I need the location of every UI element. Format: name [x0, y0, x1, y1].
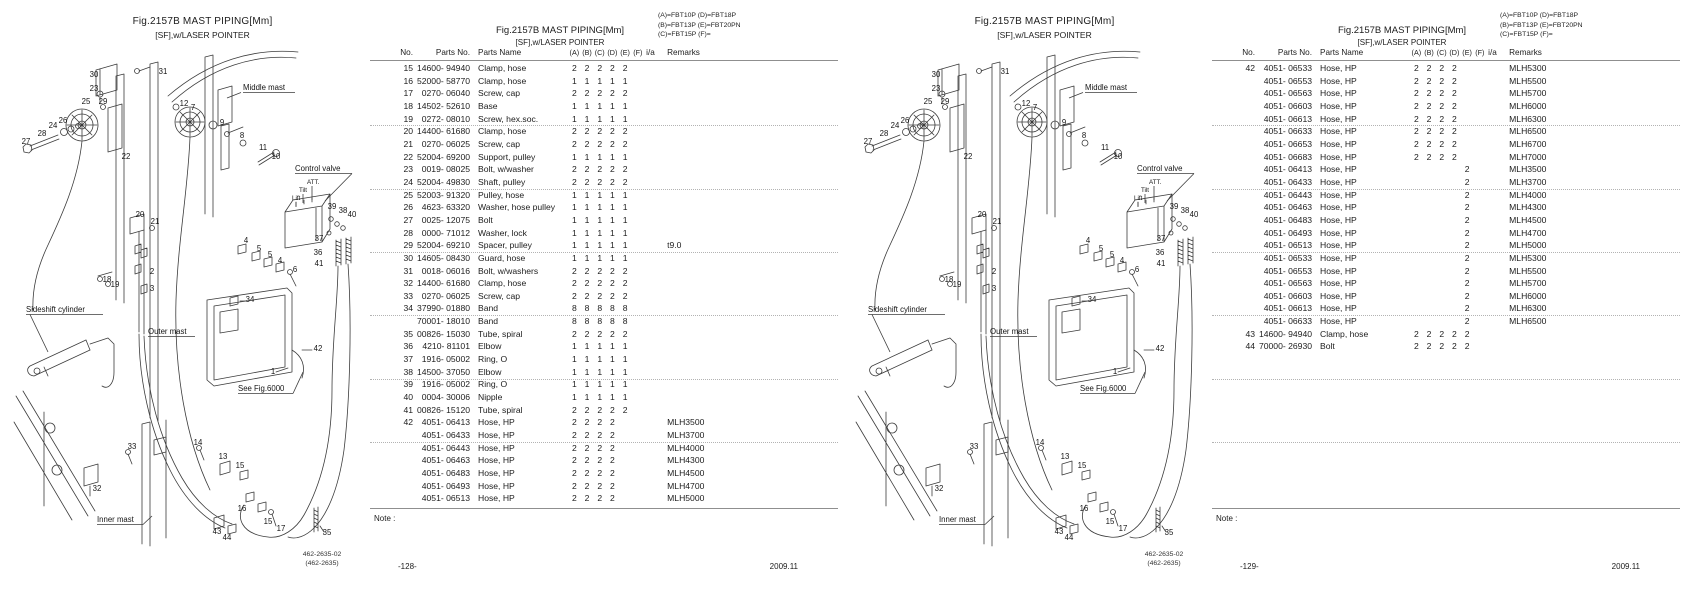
cell-qty-e: 1: [619, 201, 632, 214]
cell-qty-c: 2: [593, 125, 606, 138]
cell-qty-b: 1: [581, 113, 594, 126]
cell-qty-a: [1410, 214, 1423, 227]
callout-number: 3: [992, 284, 996, 293]
cell-parts-name: Hose, HP: [470, 467, 568, 480]
cell-qty-b: 1: [581, 75, 594, 88]
cell-parts-name: Hose, HP: [1312, 163, 1410, 176]
cell-parts-name: Hose, HP: [470, 492, 568, 505]
callout-number: 5: [1110, 250, 1115, 259]
cell-qty-c: [1435, 302, 1448, 315]
cell-qty-f: [631, 480, 644, 493]
cell-remarks: [664, 176, 838, 189]
header-ia: i/a: [1486, 45, 1506, 60]
cell-qty-b: [1423, 163, 1436, 176]
callout-number: 24: [49, 121, 58, 130]
cell-qty-f: [631, 404, 644, 417]
table-row: 4100826- 15120Tube, spiral22222: [370, 404, 838, 417]
cell-parts-no: 4051- 06633: [1255, 315, 1312, 328]
cell-qty-a: [1410, 315, 1423, 328]
callout-number: 38: [339, 206, 348, 215]
cell-qty-f: [1473, 315, 1486, 328]
callout-number: 25: [82, 97, 91, 106]
cell-ia: [644, 492, 664, 505]
cell-qty-f: [1473, 252, 1486, 265]
cell-ia: [1486, 328, 1506, 341]
cell-qty-a: 2: [1410, 328, 1423, 341]
cell-remarks: [664, 366, 838, 379]
cell-no: [1212, 163, 1255, 176]
cell-ia: [644, 328, 664, 341]
cell-qty-c: 2: [593, 138, 606, 151]
parts-table: 424051- 06533Hose, HP2222MLH53004051- 06…: [1212, 62, 1680, 509]
cell-ia: [1486, 87, 1506, 100]
cell-remarks: [664, 214, 838, 227]
table-row: 1652000- 58770Clamp, hose11111: [370, 75, 838, 88]
cell-parts-no: 0018- 06016: [413, 265, 470, 278]
cell-qty-b: [1423, 239, 1436, 252]
callout-number: 32: [93, 484, 102, 493]
callout-number: 13: [219, 452, 228, 461]
cell-qty-e: [619, 454, 632, 467]
cell-remarks: [664, 163, 838, 176]
cell-remarks: [664, 151, 838, 164]
cell-ia: [1486, 163, 1506, 176]
callout-number: 42: [1156, 344, 1165, 353]
cell-qty-f: [1473, 87, 1486, 100]
cell-parts-no: 4051- 06563: [1255, 87, 1312, 100]
cell-qty-e: 1: [619, 353, 632, 366]
cell-no: 43: [1212, 328, 1255, 341]
table-row: 4470000- 26930Bolt22222: [1212, 340, 1680, 353]
diagram-label: See Fig.6000: [1080, 384, 1127, 393]
drawing-code: 462-2635-02 (462-2635): [1122, 551, 1206, 568]
cell-parts-name: Ring, O: [470, 378, 568, 391]
cell-qty-e: 2: [619, 328, 632, 341]
cell-qty-a: 2: [568, 328, 581, 341]
cell-qty-d: 1: [606, 252, 619, 265]
cell-qty-c: [1435, 189, 1448, 202]
cell-parts-name: Bolt, w/washers: [470, 265, 568, 278]
cell-parts-name: Clamp, hose: [1312, 328, 1410, 341]
cell-qty-e: [1461, 125, 1474, 138]
cell-qty-a: 2: [568, 429, 581, 442]
diagram-label: Outer mast: [148, 327, 187, 336]
callout-number: 2: [992, 267, 996, 276]
catalog-page-128: 1234554678910111213141515161718192021222…: [0, 0, 842, 595]
diagram-label: Sideshift cylinder: [26, 305, 85, 314]
cell-ia: [644, 315, 664, 328]
cell-parts-name: Screw, cap: [470, 138, 568, 151]
cell-remarks: [664, 404, 838, 417]
header-qty-a: (A): [1410, 45, 1423, 60]
cell-no: [1212, 265, 1255, 278]
cell-remarks: [664, 227, 838, 240]
cell-qty-d: [1448, 239, 1461, 252]
cell-no: [1212, 176, 1255, 189]
cell-qty-f: [631, 87, 644, 100]
cell-remarks: [664, 328, 838, 341]
cell-ia: [1486, 252, 1506, 265]
callout-number: 17: [1119, 524, 1128, 533]
header-qty-b: (B): [1423, 45, 1436, 60]
callout-number: 19: [111, 280, 120, 289]
cell-no: [1212, 302, 1255, 315]
callout-number: 29: [99, 97, 108, 106]
diagram-artwork: [856, 51, 1193, 546]
table-row: 4051- 06533Hose, HP2MLH5300: [1212, 252, 1680, 265]
cell-qty-c: 1: [593, 252, 606, 265]
cell-parts-no: 14400- 61680: [413, 125, 470, 138]
cell-qty-c: 2: [1435, 151, 1448, 164]
cell-qty-f: [631, 252, 644, 265]
cell-qty-f: [1473, 151, 1486, 164]
diagram-label: Middle mast: [1085, 83, 1128, 92]
cell-qty-a: 2: [1410, 138, 1423, 151]
cell-parts-name: Shaft, pulley: [470, 176, 568, 189]
cell-qty-a: 2: [568, 277, 581, 290]
table-row: 2252004- 69200Support, pulley11111: [370, 151, 838, 164]
callout-number: 6: [1135, 265, 1139, 274]
callout-number: 27: [22, 137, 31, 146]
cell-remarks: [1506, 328, 1680, 341]
cell-qty-e: 2: [1461, 265, 1474, 278]
callout-number: 20: [978, 210, 987, 219]
callout-number: 13: [1061, 452, 1070, 461]
cell-qty-c: 1: [593, 113, 606, 126]
variant-key-line: (C)=FBT15P (F)=: [658, 30, 741, 40]
cell-qty-d: 2: [1448, 100, 1461, 113]
cell-qty-a: 2: [568, 480, 581, 493]
note-label: Note :: [1216, 514, 1237, 523]
cell-no: 35: [370, 328, 413, 341]
cell-parts-name: Guard, hose: [470, 252, 568, 265]
cell-qty-e: 2: [1461, 302, 1474, 315]
cell-parts-no: 4051- 06633: [1255, 125, 1312, 138]
group-separator: [1212, 315, 1680, 316]
cell-qty-e: 2: [619, 277, 632, 290]
cell-ia: [644, 252, 664, 265]
cell-no: [1212, 315, 1255, 328]
cell-qty-d: 2: [606, 467, 619, 480]
cell-ia: [644, 214, 664, 227]
group-separator: [370, 252, 838, 253]
cell-qty-f: [1473, 290, 1486, 303]
cell-no: 28: [370, 227, 413, 240]
cell-qty-f: [631, 454, 644, 467]
callout-number: 42: [314, 344, 323, 353]
cell-qty-a: 2: [568, 442, 581, 455]
cell-ia: [644, 429, 664, 442]
table-row: 371916- 05002Ring, O11111: [370, 353, 838, 366]
label-leader-line: [872, 315, 890, 353]
cell-parts-name: Hose, HP: [1312, 201, 1410, 214]
callout-number: 40: [1190, 210, 1199, 219]
cell-parts-no: 4051- 06433: [413, 429, 470, 442]
cell-remarks: MLH6000: [1506, 100, 1680, 113]
cell-parts-name: Hose, HP: [470, 442, 568, 455]
cell-qty-d: 1: [606, 366, 619, 379]
callout-number: 30: [90, 70, 99, 79]
cell-qty-e: 2: [1461, 328, 1474, 341]
diagram-subtitle: [SF],w/LASER POINTER: [60, 30, 345, 40]
callout-number: 11: [259, 143, 267, 152]
callout-number: 22: [964, 152, 973, 161]
cell-qty-a: [1410, 302, 1423, 315]
cell-qty-d: 1: [606, 227, 619, 240]
header-qty-c: (C): [593, 45, 606, 60]
cell-qty-b: 2: [581, 454, 594, 467]
cell-no: 21: [370, 138, 413, 151]
table-row: 4051- 06483Hose, HP2MLH4500: [1212, 214, 1680, 227]
callout-number: 7: [191, 103, 195, 112]
cell-parts-name: Hose, HP: [1312, 315, 1410, 328]
cell-parts-name: Hose, HP: [1312, 290, 1410, 303]
cell-no: [370, 492, 413, 505]
cell-ia: [644, 366, 664, 379]
cell-qty-f: [631, 75, 644, 88]
cell-remarks: [664, 87, 838, 100]
cell-remarks: [1506, 340, 1680, 353]
cell-qty-b: 2: [1423, 138, 1436, 151]
cell-qty-d: 2: [1448, 87, 1461, 100]
cell-qty-c: 1: [593, 201, 606, 214]
cell-remarks: MLH6500: [1506, 125, 1680, 138]
cell-qty-d: [1448, 252, 1461, 265]
model-variant-key: (A)=FBT10P (D)=FBT18P (B)=FBT13P (E)=FBT…: [1500, 11, 1583, 40]
table-title: Fig.2157B MAST PIPING[Mm]: [430, 25, 690, 36]
table-row: 4051- 06463Hose, HP2222MLH4300: [370, 454, 838, 467]
cell-ia: [644, 340, 664, 353]
cell-qty-b: 1: [581, 391, 594, 404]
cell-qty-e: 1: [619, 252, 632, 265]
cell-qty-c: 2: [593, 480, 606, 493]
cell-qty-e: [1461, 100, 1474, 113]
header-qty-d: (D): [606, 45, 619, 60]
cell-qty-c: 2: [593, 62, 606, 75]
cell-no: 42: [370, 416, 413, 429]
diagram-label: See Fig.6000: [238, 384, 285, 393]
cell-ia: [1486, 151, 1506, 164]
cell-qty-b: 1: [581, 151, 594, 164]
cell-parts-name: Hose, HP: [470, 416, 568, 429]
cell-ia: [1486, 265, 1506, 278]
cell-qty-c: 1: [593, 100, 606, 113]
cell-qty-a: 2: [568, 62, 581, 75]
page-number: -128-: [398, 562, 417, 571]
cell-qty-e: 1: [619, 113, 632, 126]
cell-qty-d: 2: [606, 265, 619, 278]
cell-no: 38: [370, 366, 413, 379]
table-row: 4051- 06413Hose, HP2MLH3500: [1212, 163, 1680, 176]
variant-key-line: (A)=FBT10P (D)=FBT18P: [658, 11, 741, 21]
cell-remarks: MLH3500: [1506, 163, 1680, 176]
cell-qty-c: 2: [593, 442, 606, 455]
header-qty-c: (C): [1435, 45, 1448, 60]
cell-parts-name: Hose, HP: [1312, 277, 1410, 290]
callout-number: 19: [953, 280, 962, 289]
cell-qty-f: [631, 315, 644, 328]
cell-qty-c: 1: [593, 227, 606, 240]
cell-qty-c: [1435, 163, 1448, 176]
cell-qty-b: 2: [1423, 340, 1436, 353]
cell-qty-b: 2: [581, 467, 594, 480]
cell-qty-f: [631, 113, 644, 126]
cell-no: [1212, 100, 1255, 113]
cell-qty-b: 2: [1423, 125, 1436, 138]
cell-parts-no: 4051- 06553: [1255, 265, 1312, 278]
label-leader-line: [325, 174, 352, 202]
diagram-label: Sideshift cylinder: [868, 305, 927, 314]
cell-parts-name: Elbow: [470, 340, 568, 353]
cell-qty-f: [631, 492, 644, 505]
callout-number: 23: [90, 84, 99, 93]
cell-remarks: [664, 125, 838, 138]
cell-qty-e: 2: [619, 87, 632, 100]
cell-qty-b: [1423, 290, 1436, 303]
cell-parts-no: 00826- 15120: [413, 404, 470, 417]
cell-parts-no: 4051- 06513: [1255, 239, 1312, 252]
cell-qty-c: [1435, 176, 1448, 189]
cell-qty-f: [1473, 265, 1486, 278]
cell-qty-d: [1448, 214, 1461, 227]
cell-qty-a: [1410, 239, 1423, 252]
table-header-row: No. Parts No. Parts Name (A) (B) (C) (D)…: [370, 45, 838, 61]
callout-number: 40: [348, 210, 357, 219]
callout-number: 17: [277, 524, 286, 533]
cell-parts-no: 1916- 05002: [413, 353, 470, 366]
cell-no: [1212, 75, 1255, 88]
cell-qty-b: 2: [581, 416, 594, 429]
cell-parts-name: Clamp, hose: [470, 277, 568, 290]
cell-qty-c: 2: [593, 277, 606, 290]
cell-qty-e: [619, 480, 632, 493]
cell-qty-a: 1: [568, 75, 581, 88]
drawing-code: 462-2635-02 (462-2635): [280, 551, 364, 568]
cell-remarks: [664, 277, 838, 290]
cell-parts-no: 4051- 06413: [1255, 163, 1312, 176]
cell-remarks: MLH4500: [664, 467, 838, 480]
cell-qty-a: 2: [568, 138, 581, 151]
cell-qty-e: [619, 492, 632, 505]
cell-no: 19: [370, 113, 413, 126]
cell-remarks: [664, 391, 838, 404]
cell-ia: [644, 151, 664, 164]
cell-qty-f: [631, 416, 644, 429]
cell-parts-no: 4051- 06493: [1255, 227, 1312, 240]
catalog-spread: 1234554678910111213141515161718192021222…: [0, 0, 1684, 595]
callout-number: 8: [1082, 131, 1086, 140]
callout-number: 36: [1156, 248, 1165, 257]
callout-number: 25: [924, 97, 933, 106]
callout-number: 44: [223, 533, 232, 542]
cell-qty-a: 8: [568, 302, 581, 315]
cell-qty-d: [1448, 163, 1461, 176]
cell-remarks: MLH3500: [664, 416, 838, 429]
cell-parts-name: Bolt: [470, 214, 568, 227]
cell-remarks: MLH4300: [1506, 201, 1680, 214]
cell-qty-f: [1473, 138, 1486, 151]
cell-no: [1212, 239, 1255, 252]
cell-parts-name: Ring, O: [470, 353, 568, 366]
cell-qty-c: 2: [593, 328, 606, 341]
callout-number: 16: [1080, 504, 1089, 513]
cell-parts-name: Base: [470, 100, 568, 113]
header-qty-d: (D): [1448, 45, 1461, 60]
publication-date: 2009.11: [1542, 562, 1640, 571]
cell-qty-e: [1461, 138, 1474, 151]
cell-qty-f: [631, 201, 644, 214]
model-variant-key: (A)=FBT10P (D)=FBT18P (B)=FBT13P (E)=FBT…: [658, 11, 741, 40]
cell-remarks: MLH5700: [1506, 87, 1680, 100]
cell-ia: [1486, 239, 1506, 252]
cell-qty-a: [1410, 290, 1423, 303]
callout-number: 26: [59, 116, 68, 125]
table-row: 391916- 05002Ring, O11111: [370, 378, 838, 391]
cell-qty-f: [1473, 239, 1486, 252]
callout-number: 4: [244, 236, 249, 245]
cell-parts-no: 1916- 05002: [413, 378, 470, 391]
cell-qty-d: 2: [1448, 151, 1461, 164]
cell-no: 34: [370, 302, 413, 315]
table-row: 2452004- 49830Shaft, pulley22222: [370, 176, 838, 189]
cell-qty-f: [631, 353, 644, 366]
cell-parts-name: Hose, HP: [470, 454, 568, 467]
cell-no: 40: [370, 391, 413, 404]
cell-no: 24: [370, 176, 413, 189]
cell-qty-d: 2: [606, 87, 619, 100]
cell-qty-d: 2: [1448, 125, 1461, 138]
cell-parts-no: 4051- 06413: [413, 416, 470, 429]
cell-qty-f: [631, 239, 644, 252]
cell-remarks: [664, 201, 838, 214]
cell-qty-a: 2: [568, 125, 581, 138]
cell-remarks: MLH7000: [1506, 151, 1680, 164]
cell-qty-a: 2: [1410, 340, 1423, 353]
note-label: Note :: [374, 514, 395, 523]
cell-qty-e: 2: [1461, 239, 1474, 252]
callout-number: 1: [271, 367, 275, 376]
cell-no: 23: [370, 163, 413, 176]
cell-parts-no: 70001- 18010: [413, 315, 470, 328]
cell-parts-no: 52004- 49830: [413, 176, 470, 189]
table-row: 2552003- 91320Pulley, hose11111: [370, 189, 838, 202]
cell-qty-d: 2: [606, 480, 619, 493]
cell-qty-c: [1435, 265, 1448, 278]
callout-number: 38: [1181, 206, 1190, 215]
group-separator: [1212, 252, 1680, 253]
cell-qty-f: [1473, 277, 1486, 290]
cell-qty-b: 1: [581, 239, 594, 252]
cell-ia: [644, 302, 664, 315]
callout-number: 24: [891, 121, 900, 130]
cell-remarks: MLH5500: [1506, 265, 1680, 278]
cell-ia: [644, 277, 664, 290]
cell-remarks: [664, 315, 838, 328]
cell-qty-c: [1435, 315, 1448, 328]
cell-qty-d: 1: [606, 378, 619, 391]
cell-qty-e: 2: [1461, 252, 1474, 265]
cell-qty-b: 2: [1423, 62, 1436, 75]
cell-qty-f: [1473, 113, 1486, 126]
callout-number: 15: [1106, 517, 1115, 526]
cell-qty-d: 1: [606, 239, 619, 252]
cell-parts-no: 4051- 06513: [413, 492, 470, 505]
header-no: No.: [370, 45, 413, 60]
cell-remarks: MLH5300: [1506, 62, 1680, 75]
cell-qty-e: 2: [1461, 290, 1474, 303]
cell-ia: [644, 75, 664, 88]
cell-qty-d: 8: [606, 302, 619, 315]
